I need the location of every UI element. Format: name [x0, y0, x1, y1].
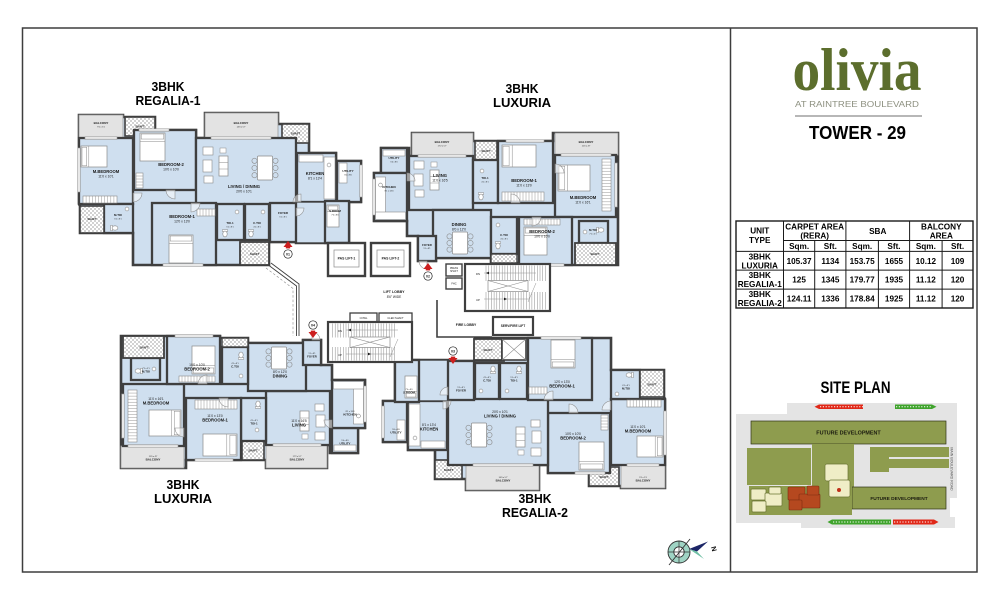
svg-text:4'1 x 8'1: 4'1 x 8'1 [500, 238, 508, 240]
svg-text:TYPE: TYPE [749, 236, 771, 245]
svg-text:SHAFT: SHAFT [599, 475, 609, 479]
svg-text:8'1 x 13'4: 8'1 x 13'4 [385, 190, 395, 192]
svg-text:BEDROOM-2: BEDROOM-2 [184, 366, 210, 371]
svg-text:M.TOI: M.TOI [589, 228, 597, 232]
svg-text:CARPET AREA: CARPET AREA [785, 223, 844, 232]
svg-text:UP: UP [476, 298, 480, 302]
svg-text:8'6" WIDE: 8'6" WIDE [387, 295, 402, 299]
svg-text:SHAFT: SHAFT [139, 345, 149, 349]
svg-text:M.BEDROOM: M.BEDROOM [625, 428, 652, 433]
svg-text:Sqm.: Sqm. [916, 242, 936, 251]
svg-text:PAS LIFT-1: PAS LIFT-1 [338, 257, 356, 261]
svg-text:5'1 x 8'1: 5'1 x 8'1 [309, 353, 316, 355]
svg-text:REGALIA-2: REGALIA-2 [502, 505, 568, 520]
svg-text:M.BEDROOM: M.BEDROOM [143, 400, 170, 405]
svg-text:20'0 x 10'1: 20'0 x 10'1 [236, 190, 252, 194]
svg-text:01: 01 [286, 252, 290, 256]
svg-text:UTILITY: UTILITY [389, 156, 400, 160]
svg-text:C.TOI: C.TOI [500, 233, 508, 237]
svg-text:BEDROOM-2: BEDROOM-2 [529, 229, 555, 234]
svg-text:02: 02 [426, 274, 430, 278]
svg-text:4'1 x 8'1: 4'1 x 8'1 [483, 377, 491, 379]
svg-text:4'1 x 8'1: 4'1 x 8'1 [250, 420, 258, 422]
svg-text:8'1 x 13'4: 8'1 x 13'4 [346, 411, 356, 413]
svg-text:7'0 x 8'0: 7'0 x 8'0 [405, 389, 413, 391]
svg-text:C.TOI: C.TOI [253, 221, 261, 225]
svg-text:10'0 x 10'0: 10'0 x 10'0 [534, 235, 550, 239]
svg-text:14'0 x 5'7: 14'0 x 5'7 [237, 126, 247, 128]
svg-text:9'1 x 5'1: 9'1 x 5'1 [97, 126, 105, 128]
svg-text:11.12: 11.12 [916, 295, 936, 304]
svg-text:LIVING / DINING: LIVING / DINING [228, 184, 260, 189]
svg-text:3BHK: 3BHK [519, 491, 553, 506]
svg-text:SHAFT: SHAFT [450, 270, 458, 273]
svg-text:Sft.: Sft. [887, 242, 900, 251]
svg-text:109: 109 [951, 257, 965, 266]
svg-text:TOI-1: TOI-1 [481, 176, 489, 180]
svg-text:3BHK: 3BHK [152, 79, 186, 94]
svg-text:5'1 x 8'1: 5'1 x 8'1 [279, 216, 287, 218]
svg-text:5'0 x 8'0: 5'0 x 8'0 [341, 440, 349, 442]
svg-text:CLED SHAFT: CLED SHAFT [387, 316, 404, 320]
svg-text:KITCHEN: KITCHEN [420, 426, 439, 431]
svg-text:1336: 1336 [821, 295, 840, 304]
svg-text:153.75: 153.75 [850, 257, 875, 266]
svg-text:BALCONY: BALCONY [921, 223, 962, 232]
svg-text:LUXURIA: LUXURIA [742, 261, 778, 270]
svg-text:8'0 x 12'0: 8'0 x 12'0 [452, 228, 466, 232]
svg-text:TOI-1: TOI-1 [226, 221, 234, 225]
svg-text:FHC: FHC [451, 282, 456, 286]
svg-text:BALCONY: BALCONY [579, 140, 594, 144]
svg-text:11'0 x 4'7: 11'0 x 4'7 [582, 145, 591, 147]
svg-text:COWL: COWL [360, 316, 368, 320]
svg-text:5'1 x 8'1: 5'1 x 8'1 [424, 248, 431, 250]
svg-text:M.TOI: M.TOI [114, 213, 122, 217]
svg-text:3BHK: 3BHK [749, 271, 771, 280]
svg-text:REGALIA-1: REGALIA-1 [136, 93, 201, 108]
svg-text:12'0 x 13'0: 12'0 x 13'0 [554, 380, 570, 384]
svg-text:Sft.: Sft. [951, 242, 964, 251]
svg-text:MAIN BOULEVARD ROAD: MAIN BOULEVARD ROAD [950, 447, 954, 491]
svg-text:5'1 x 8'1: 5'1 x 8'1 [226, 226, 234, 228]
svg-text:179.77: 179.77 [850, 276, 875, 285]
svg-text:BEDROOM-2: BEDROOM-2 [158, 162, 184, 167]
svg-text:Sqm.: Sqm. [789, 242, 809, 251]
svg-text:BEDROOM-1: BEDROOM-1 [169, 214, 195, 219]
svg-text:DINING: DINING [273, 373, 288, 378]
svg-text:1935: 1935 [885, 276, 904, 285]
svg-text:FOYER: FOYER [278, 211, 289, 215]
svg-text:8'0 x 12'0: 8'0 x 12'0 [273, 370, 287, 374]
svg-text:8'1 x 13'4: 8'1 x 13'4 [308, 177, 322, 181]
svg-text:FIRE LOBBY: FIRE LOBBY [456, 323, 477, 327]
svg-text:14'0 x 5'7: 14'0 x 5'7 [499, 477, 509, 479]
svg-text:LIVING / DINING: LIVING / DINING [484, 413, 516, 418]
svg-text:PAS LIFT-2: PAS LIFT-2 [382, 257, 400, 261]
svg-text:5'0 x 8'0: 5'0 x 8'0 [392, 429, 400, 431]
svg-text:DN: DN [338, 329, 342, 333]
svg-text:BALCONY: BALCONY [435, 140, 450, 144]
svg-text:FUTURE DEVELOPMENT: FUTURE DEVELOPMENT [816, 431, 881, 437]
svg-text:FUTURE DEVELOPMENT: FUTURE DEVELOPMENT [870, 496, 927, 502]
svg-text:11'0 x 16'5: 11'0 x 16'5 [291, 419, 307, 423]
svg-text:AT RAINTREE BOULEVARD: AT RAINTREE BOULEVARD [795, 100, 919, 109]
svg-text:SHAFT: SHAFT [483, 348, 493, 352]
svg-text:LUXURIA: LUXURIA [493, 95, 552, 110]
svg-text:124.11: 124.11 [787, 295, 812, 304]
svg-text:UNIT: UNIT [750, 227, 769, 236]
svg-text:5'1 x 8'1: 5'1 x 8'1 [457, 387, 465, 389]
svg-text:17'2 x 5'7: 17'2 x 5'7 [293, 456, 303, 458]
svg-text:9'1 x 5'1: 9'1 x 5'1 [639, 477, 647, 479]
svg-text:BALCONY: BALCONY [234, 121, 249, 125]
svg-text:8'1 x 13'4: 8'1 x 13'4 [422, 423, 436, 427]
svg-text:3BHK: 3BHK [749, 252, 771, 261]
svg-text:125: 125 [792, 276, 806, 285]
svg-text:11'0 x 13'0: 11'0 x 13'0 [207, 414, 223, 418]
svg-text:6'1 x 8'1: 6'1 x 8'1 [114, 218, 122, 220]
svg-text:7'1 x 5'1: 7'1 x 5'1 [142, 368, 150, 370]
svg-text:1134: 1134 [821, 257, 839, 266]
svg-text:11'0 x 16'1: 11'0 x 16'1 [148, 397, 164, 401]
svg-text:SHAFT: SHAFT [481, 149, 491, 153]
svg-text:LIVING: LIVING [292, 422, 306, 427]
svg-text:LIVING: LIVING [433, 173, 447, 178]
svg-text:SHAFT: SHAFT [291, 132, 301, 136]
svg-text:11'0 x 10'1: 11'0 x 10'1 [98, 175, 114, 179]
svg-text:178.84: 178.84 [850, 295, 875, 304]
svg-text:(RERA): (RERA) [800, 232, 829, 241]
svg-text:17'2 x 5'7: 17'2 x 5'7 [438, 145, 448, 147]
svg-text:TOWER - 29: TOWER - 29 [809, 122, 906, 143]
svg-text:REGALIA-1: REGALIA-1 [738, 280, 783, 289]
svg-text:11'0 x 4'7: 11'0 x 4'7 [149, 456, 158, 458]
svg-text:SHAFT: SHAFT [135, 125, 145, 129]
svg-text:10'0 x 10'0: 10'0 x 10'0 [189, 363, 205, 367]
svg-text:3BHK: 3BHK [506, 81, 540, 96]
svg-text:6'1 x 8'1: 6'1 x 8'1 [622, 385, 630, 387]
svg-text:120: 120 [951, 276, 965, 285]
svg-text:12'0 x 13'0: 12'0 x 13'0 [174, 220, 190, 224]
svg-text:KITCHEN: KITCHEN [382, 185, 395, 189]
svg-text:SERV/FIRE LIFT: SERV/FIRE LIFT [501, 324, 525, 328]
svg-text:105.37: 105.37 [787, 257, 812, 266]
svg-text:SBA: SBA [869, 227, 886, 236]
svg-text:FOYER: FOYER [422, 243, 432, 247]
svg-text:3BHK: 3BHK [167, 477, 201, 492]
svg-text:4'1 x 8'1: 4'1 x 8'1 [481, 181, 489, 183]
svg-text:DN: DN [476, 272, 480, 276]
svg-text:Sqm.: Sqm. [852, 242, 872, 251]
svg-text:5'0 x 8'0: 5'0 x 8'0 [344, 174, 352, 176]
svg-text:BEDROOM-1: BEDROOM-1 [549, 383, 575, 388]
svg-text:4'1 x 8'1: 4'1 x 8'1 [231, 363, 239, 365]
svg-text:3BHK: 3BHK [749, 290, 771, 299]
svg-text:DINING: DINING [452, 222, 467, 227]
svg-text:10'0 x 10'0: 10'0 x 10'0 [565, 432, 581, 436]
svg-text:10.12: 10.12 [916, 257, 937, 266]
svg-text:UP: UP [338, 353, 342, 357]
svg-text:LUXURIA: LUXURIA [154, 491, 213, 506]
svg-text:04: 04 [311, 323, 315, 327]
svg-text:1925: 1925 [885, 295, 904, 304]
svg-text:BEDROOM-1: BEDROOM-1 [511, 178, 537, 183]
svg-text:BEDROOM-2: BEDROOM-2 [560, 435, 586, 440]
svg-text:LIFT LOBBY: LIFT LOBBY [383, 290, 405, 294]
svg-text:11'0 x 13'0: 11'0 x 13'0 [516, 184, 532, 188]
svg-text:BEDROOM-1: BEDROOM-1 [202, 417, 228, 422]
svg-text:11.12: 11.12 [916, 276, 936, 285]
svg-text:AREA: AREA [930, 232, 953, 241]
svg-text:7'0 x 8'0: 7'0 x 8'0 [331, 214, 339, 216]
svg-text:M.BEDROOM: M.BEDROOM [93, 169, 120, 174]
svg-text:20'0 x 10'1: 20'0 x 10'1 [492, 410, 508, 414]
svg-text:11'0 x 10'1: 11'0 x 10'1 [630, 425, 646, 429]
svg-text:03: 03 [451, 349, 455, 353]
svg-text:BALCONY: BALCONY [94, 121, 109, 125]
svg-text:4'1 x 8'1: 4'1 x 8'1 [253, 226, 261, 228]
svg-text:10'0 x 10'0: 10'0 x 10'0 [163, 168, 179, 172]
svg-text:KITCHEN: KITCHEN [306, 171, 325, 176]
svg-text:5'1 x 8'1: 5'1 x 8'1 [510, 377, 518, 379]
svg-text:M.BEDROOM: M.BEDROOM [570, 195, 597, 200]
svg-text:7'1 x 5'1: 7'1 x 5'1 [589, 233, 597, 235]
svg-text:SHAFT: SHAFT [250, 252, 260, 256]
svg-text:S.ROOM: S.ROOM [329, 209, 341, 213]
svg-text:11'0 x 16'1: 11'0 x 16'1 [575, 201, 591, 205]
svg-text:SHAFT: SHAFT [87, 217, 97, 221]
svg-text:UTILITY: UTILITY [342, 169, 353, 173]
svg-text:Sft.: Sft. [824, 242, 837, 251]
svg-text:120: 120 [951, 295, 965, 304]
svg-text:SHAFT: SHAFT [647, 382, 657, 386]
svg-text:REGALIA-2: REGALIA-2 [738, 299, 783, 308]
svg-text:SHAFT: SHAFT [444, 468, 454, 472]
svg-text:1345: 1345 [821, 276, 840, 285]
svg-text:olivia: olivia [793, 37, 922, 103]
svg-text:1655: 1655 [885, 257, 904, 266]
svg-text:11'0 x 16'5: 11'0 x 16'5 [432, 179, 448, 183]
svg-text:SHAFT: SHAFT [248, 448, 258, 452]
svg-text:5'0 x 8'0: 5'0 x 8'0 [390, 161, 398, 163]
svg-text:SHAFT: SHAFT [590, 252, 600, 256]
svg-text:SITE PLAN: SITE PLAN [821, 378, 891, 397]
